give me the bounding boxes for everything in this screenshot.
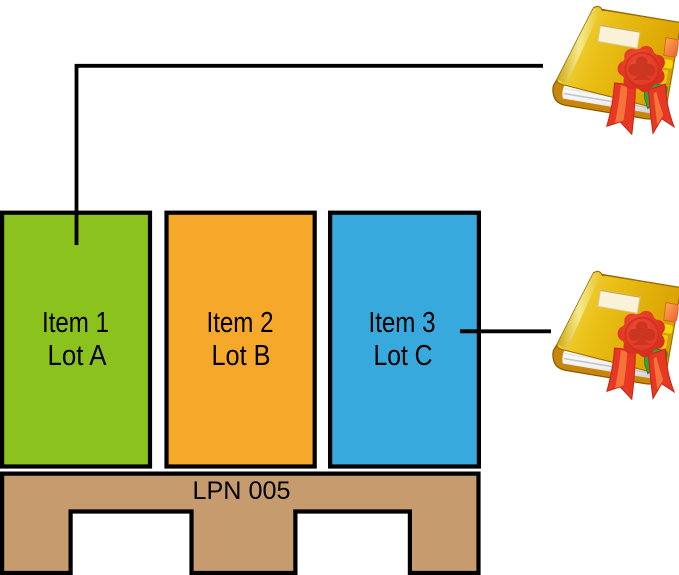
svg-text:Item 3: Item 3 — [369, 307, 436, 339]
svg-text:LPN 005: LPN 005 — [193, 477, 291, 505]
svg-text:Item 2: Item 2 — [207, 307, 274, 339]
svg-text:Lot B: Lot B — [212, 340, 271, 372]
svg-text:Lot C: Lot C — [374, 340, 433, 372]
svg-text:Lot A: Lot A — [48, 340, 108, 372]
svg-text:Item 1: Item 1 — [42, 307, 109, 339]
